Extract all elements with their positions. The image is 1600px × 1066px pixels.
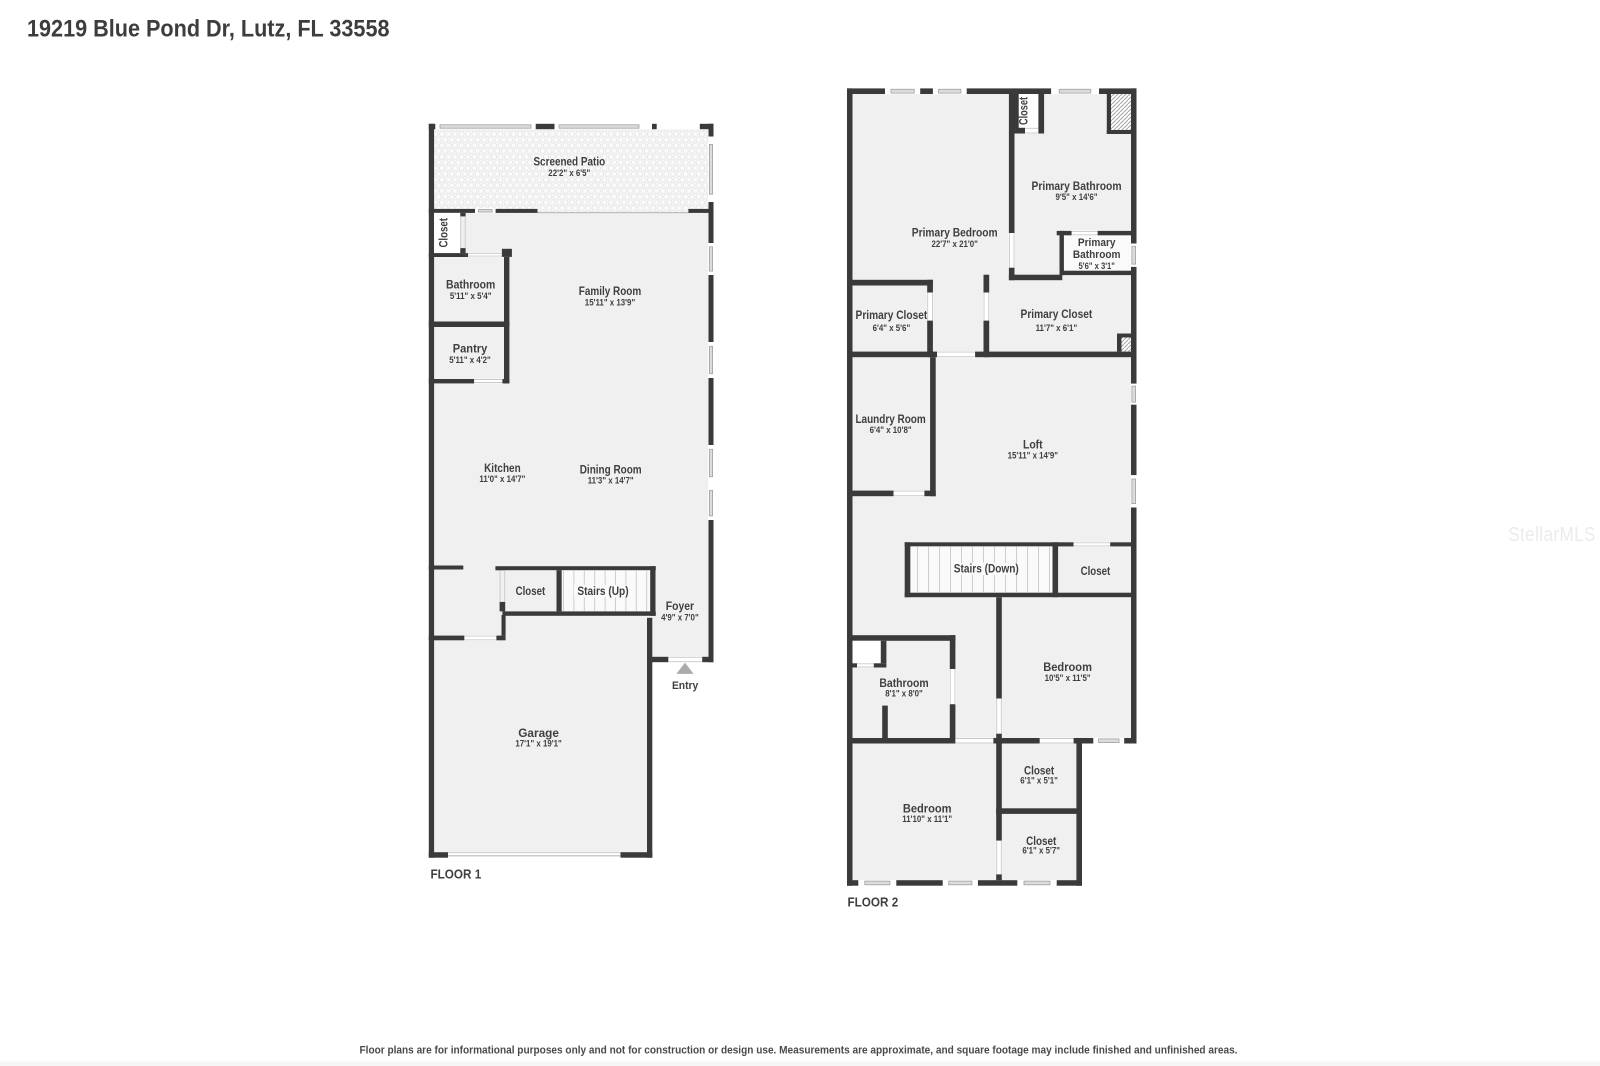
svg-text:11'0" x 14'7": 11'0" x 14'7"	[479, 474, 525, 484]
svg-text:Family Room: Family Room	[579, 284, 642, 298]
svg-text:Primary: Primary	[1078, 237, 1116, 249]
svg-text:Entry: Entry	[672, 680, 699, 692]
svg-text:FLOOR 1: FLOOR 1	[431, 867, 482, 882]
svg-text:4'9" x 7'0": 4'9" x 7'0"	[661, 613, 699, 623]
svg-text:6'4" x 10'8": 6'4" x 10'8"	[870, 425, 912, 435]
svg-text:6'1" x 5'1": 6'1" x 5'1"	[1020, 776, 1058, 786]
svg-text:10'5" x 11'5": 10'5" x 11'5"	[1045, 673, 1091, 683]
svg-text:15'11" x 13'9": 15'11" x 13'9"	[585, 297, 635, 307]
svg-text:Stairs (Down): Stairs (Down)	[954, 562, 1019, 576]
svg-text:5'11" x 5'4": 5'11" x 5'4"	[450, 291, 492, 301]
svg-text:Closet: Closet	[1081, 564, 1111, 578]
svg-text:5'11" x 4'2": 5'11" x 4'2"	[449, 355, 491, 365]
svg-text:Loft: Loft	[1023, 437, 1043, 451]
svg-text:Primary Closet: Primary Closet	[856, 308, 928, 322]
svg-text:11'7" x 6'1": 11'7" x 6'1"	[1036, 323, 1078, 333]
svg-text:6'1" x 5'7": 6'1" x 5'7"	[1022, 845, 1060, 855]
svg-text:Bathroom: Bathroom	[446, 278, 495, 292]
svg-text:Stairs (Up): Stairs (Up)	[577, 584, 628, 598]
svg-text:11'10" x 11'1": 11'10" x 11'1"	[902, 814, 952, 824]
svg-text:22'2" x 6'5": 22'2" x 6'5"	[548, 168, 590, 178]
svg-text:Screened Patio: Screened Patio	[533, 155, 605, 169]
svg-text:5'6" x 3'1": 5'6" x 3'1"	[1079, 261, 1115, 271]
svg-text:6'4" x 5'6": 6'4" x 5'6"	[873, 323, 911, 333]
svg-text:Closet: Closet	[438, 218, 450, 248]
svg-text:Kitchen: Kitchen	[484, 461, 521, 475]
svg-text:Closet: Closet	[516, 584, 546, 598]
svg-text:Closet: Closet	[1019, 97, 1031, 125]
svg-text:11'3" x 14'7": 11'3" x 14'7"	[588, 476, 634, 486]
svg-text:Bedroom: Bedroom	[1043, 660, 1092, 674]
svg-text:FLOOR 2: FLOOR 2	[848, 894, 899, 909]
svg-text:9'5" x 14'6": 9'5" x 14'6"	[1056, 192, 1098, 202]
svg-text:Dining Room: Dining Room	[580, 462, 642, 476]
svg-text:Floor plans are for informatio: Floor plans are for informational purpos…	[360, 1045, 1238, 1057]
svg-text:Primary Bedroom: Primary Bedroom	[912, 225, 998, 239]
svg-text:15'11" x 14'9": 15'11" x 14'9"	[1008, 450, 1058, 460]
svg-text:StellarMLS: StellarMLS	[1508, 524, 1596, 546]
svg-text:Primary Closet: Primary Closet	[1021, 307, 1093, 321]
svg-text:Foyer: Foyer	[666, 599, 694, 613]
svg-text:Bathroom: Bathroom	[1073, 249, 1121, 261]
svg-text:Pantry: Pantry	[453, 342, 488, 356]
svg-text:19219 Blue Pond Dr, Lutz, FL 3: 19219 Blue Pond Dr, Lutz, FL 33558	[27, 15, 390, 42]
svg-text:17'1" x 19'1": 17'1" x 19'1"	[515, 738, 561, 748]
svg-text:22'7" x 21'0": 22'7" x 21'0"	[932, 239, 978, 249]
svg-text:8'1" x 8'0": 8'1" x 8'0"	[885, 689, 923, 699]
svg-text:Primary Bathroom: Primary Bathroom	[1031, 179, 1121, 193]
